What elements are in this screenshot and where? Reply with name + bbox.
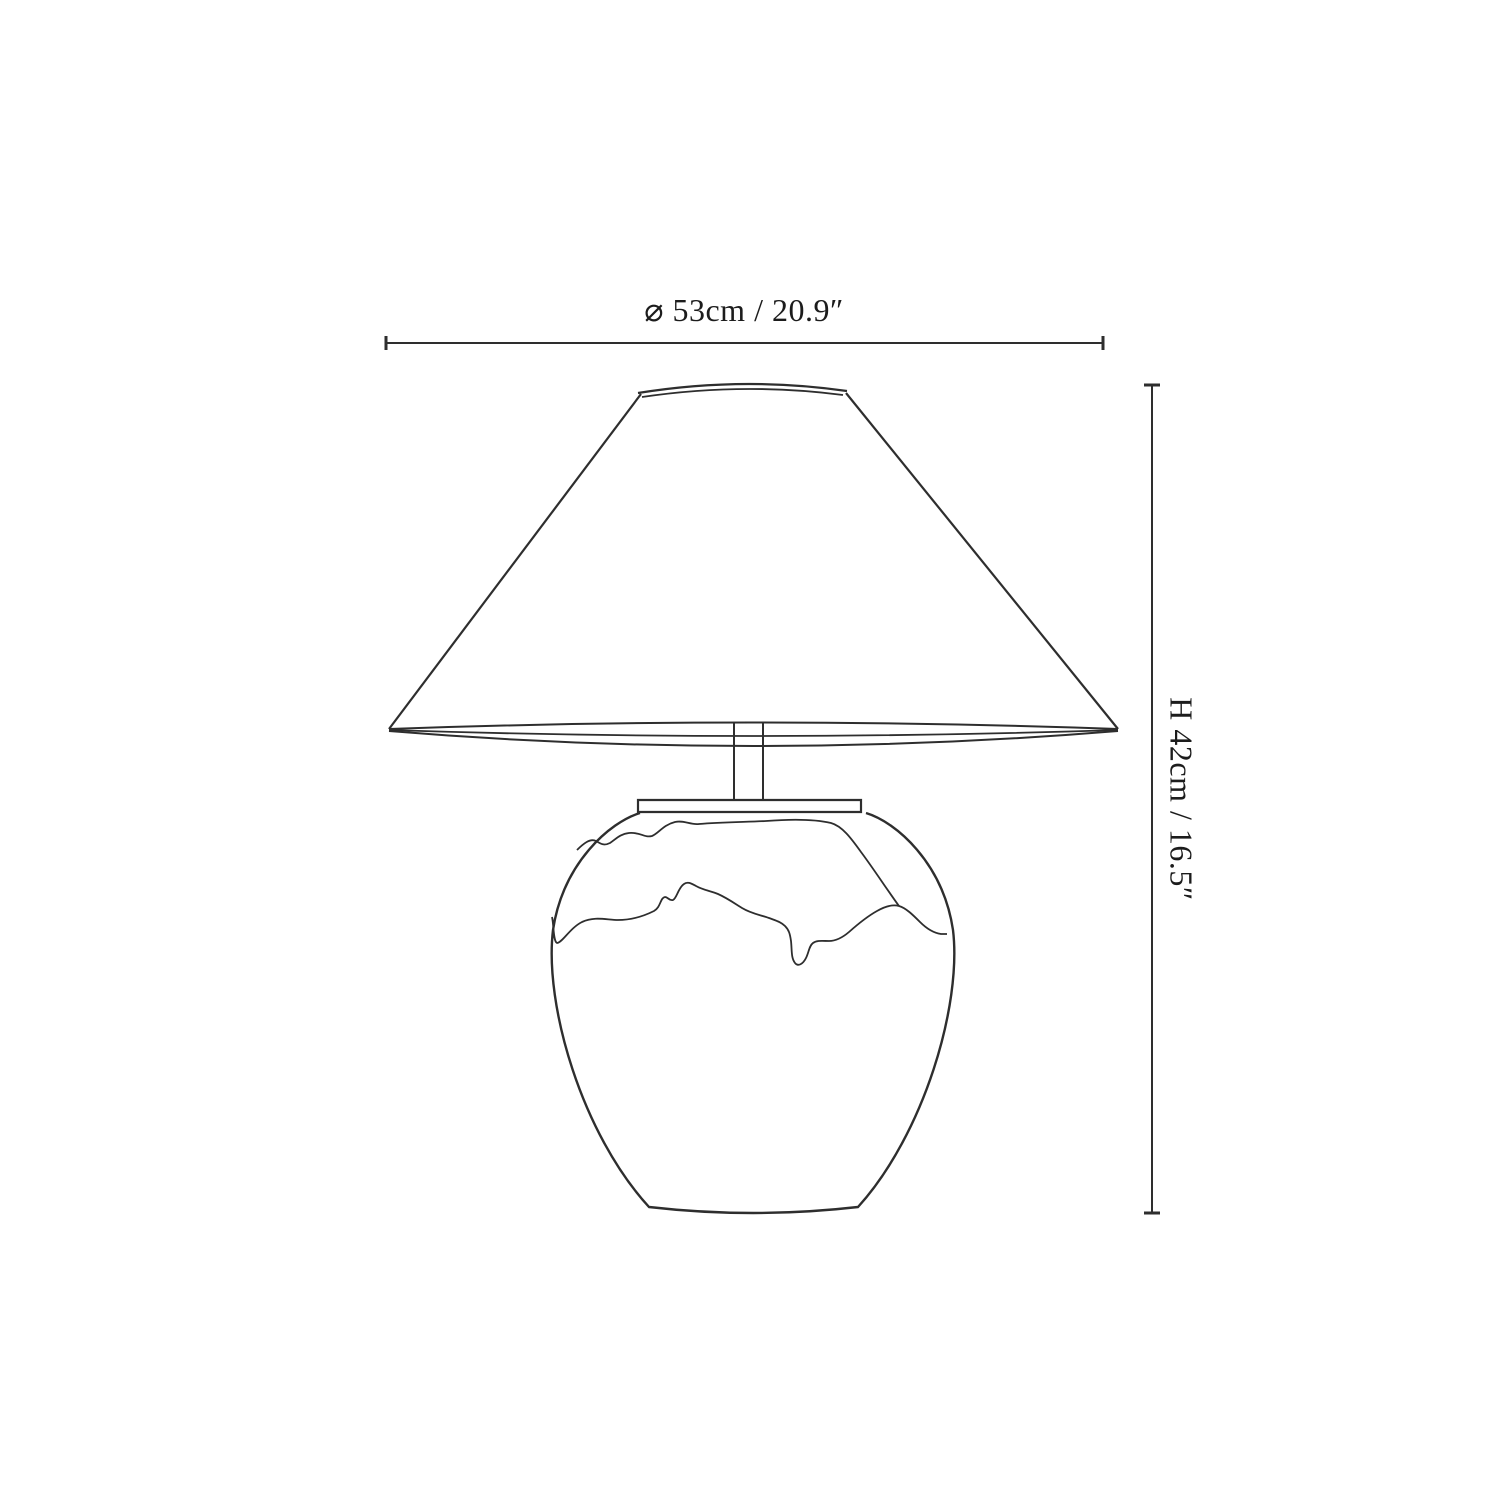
shade-top-rim-inner	[642, 389, 843, 397]
height-dimension-line	[1144, 385, 1160, 1213]
lamp-base	[552, 813, 955, 1213]
base-texture-crack-lower	[552, 883, 947, 965]
width-dimension-line	[386, 336, 1103, 350]
height-dimension-label: H 42cm / 16.5″	[1163, 697, 1200, 900]
dimension-diagram: ⌀ 53cm / 20.9″ H 42cm / 16.5″	[0, 0, 1500, 1500]
shade-left-slope	[389, 394, 641, 729]
lamp-line-drawing	[0, 0, 1500, 1500]
shade-right-slope	[846, 393, 1118, 729]
shade-bottom-rim-middle-edge	[389, 730, 1118, 736]
base-outline	[552, 813, 955, 1213]
width-dimension-label: ⌀ 53cm / 20.9″	[644, 291, 844, 329]
base-texture-crack-upper	[577, 820, 899, 906]
base-cap-plate	[638, 800, 861, 812]
lamp-shade	[389, 384, 1118, 746]
shade-bottom-rim-top-edge	[389, 723, 1118, 730]
